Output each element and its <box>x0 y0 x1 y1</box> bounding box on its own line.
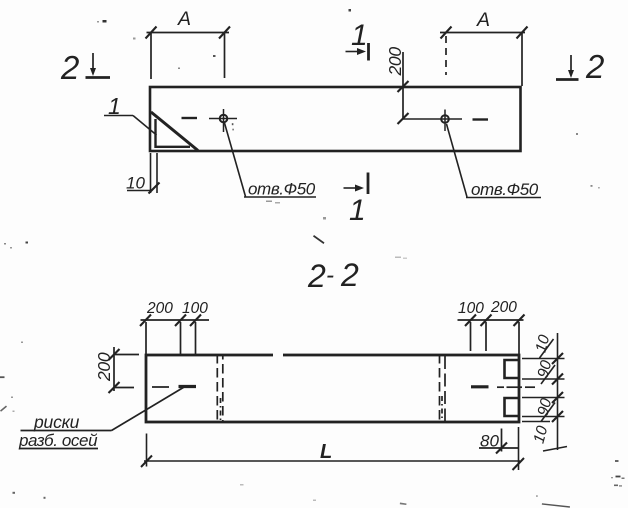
svg-text:разб. осей: разб. осей <box>18 431 98 450</box>
svg-text:2: 2 <box>340 257 359 293</box>
svg-text:-: - <box>326 262 334 289</box>
svg-text:200: 200 <box>490 299 517 316</box>
svg-text:2: 2 <box>307 258 326 294</box>
svg-text:отв.Ф50: отв.Ф50 <box>248 180 316 199</box>
svg-text:отв.Ф50: отв.Ф50 <box>471 180 539 199</box>
svg-text:1: 1 <box>349 194 366 227</box>
svg-text:200: 200 <box>94 352 114 382</box>
svg-text:100: 100 <box>458 300 484 317</box>
svg-text:2: 2 <box>60 49 79 86</box>
svg-text:риски: риски <box>33 412 80 432</box>
svg-text:200: 200 <box>146 300 173 317</box>
svg-text:80: 80 <box>480 432 499 451</box>
svg-text:10: 10 <box>126 174 145 193</box>
svg-text:А: А <box>476 9 490 31</box>
svg-text:100: 100 <box>182 300 208 317</box>
svg-text:1: 1 <box>351 19 368 52</box>
svg-text:200: 200 <box>385 47 405 77</box>
svg-text:А: А <box>177 8 191 30</box>
svg-text:2: 2 <box>585 48 604 85</box>
svg-text:L: L <box>320 441 332 463</box>
